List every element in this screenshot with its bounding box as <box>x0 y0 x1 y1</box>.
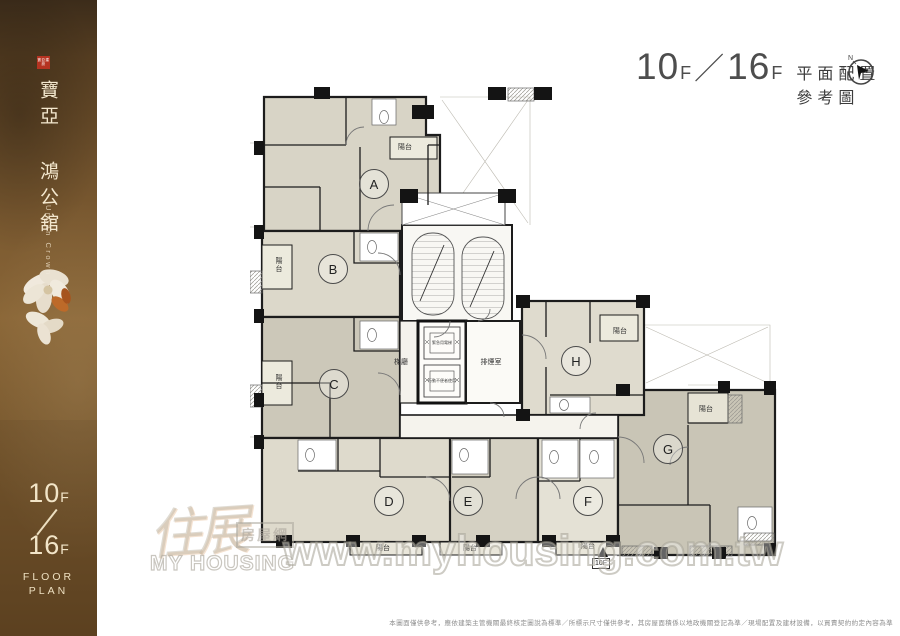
sidebar-floor-bottom: 16F <box>0 530 97 561</box>
watermark-logo-en: MY HOUSING <box>150 552 295 576</box>
svg-text:N: N <box>848 55 853 62</box>
floor-plan-drawing <box>250 85 780 575</box>
header-slash: ／ <box>694 44 724 88</box>
sidebar-floor-top: 10F <box>0 478 97 509</box>
floor-word: FLOOR <box>0 571 97 583</box>
plan-word: PLAN <box>0 585 97 597</box>
sidebar-floor-block: 10F 16F FLOOR PLAN <box>0 0 97 636</box>
brand-sidebar: 寶亞建設 寶亞 鴻公舘 Urban Crown 10F 16F FLOOR <box>0 0 97 636</box>
header-floor-right: 16 <box>727 46 770 88</box>
header-floor-left: 10 <box>636 46 679 88</box>
north-compass-icon: N <box>841 50 879 90</box>
page: 寶亞建設 寶亞 鴻公舘 Urban Crown 10F 16F FLOOR <box>0 0 900 636</box>
disclaimer-text: 本圖面僅供參考，應依建築主管機關最終核定圖說為標準／所標示尺寸僅供參考，其房屋面… <box>389 617 893 627</box>
watermark-url: www.myhousing.com.tw <box>283 527 783 576</box>
